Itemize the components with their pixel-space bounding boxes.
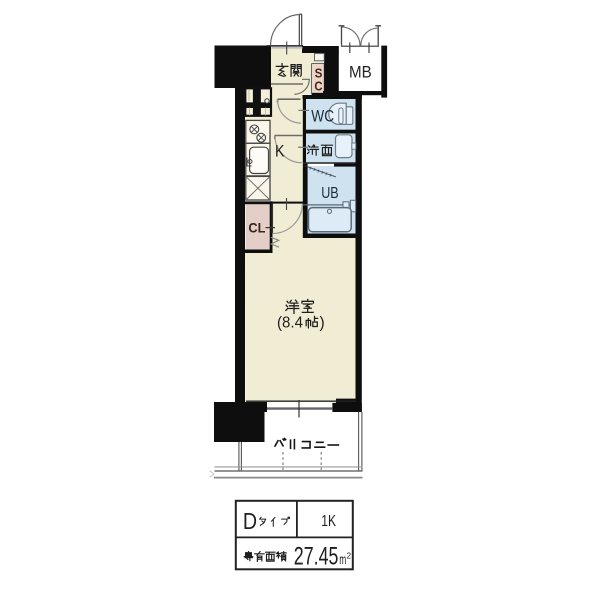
svg-text:C: C (314, 78, 323, 93)
svg-text:2: 2 (347, 552, 352, 561)
svg-text:1K: 1K (321, 513, 336, 530)
svg-text:WC: WC (311, 106, 334, 125)
svg-text:K: K (275, 143, 285, 161)
svg-text:(8.4: (8.4 (277, 315, 303, 332)
svg-text:): ) (320, 315, 325, 332)
svg-text:CL: CL (248, 221, 265, 236)
svg-text:UB: UB (321, 185, 339, 202)
svg-text:D: D (243, 508, 257, 534)
svg-text:27.45: 27.45 (294, 543, 339, 571)
svg-text:MB: MB (349, 64, 372, 82)
svg-text:m: m (339, 552, 346, 567)
